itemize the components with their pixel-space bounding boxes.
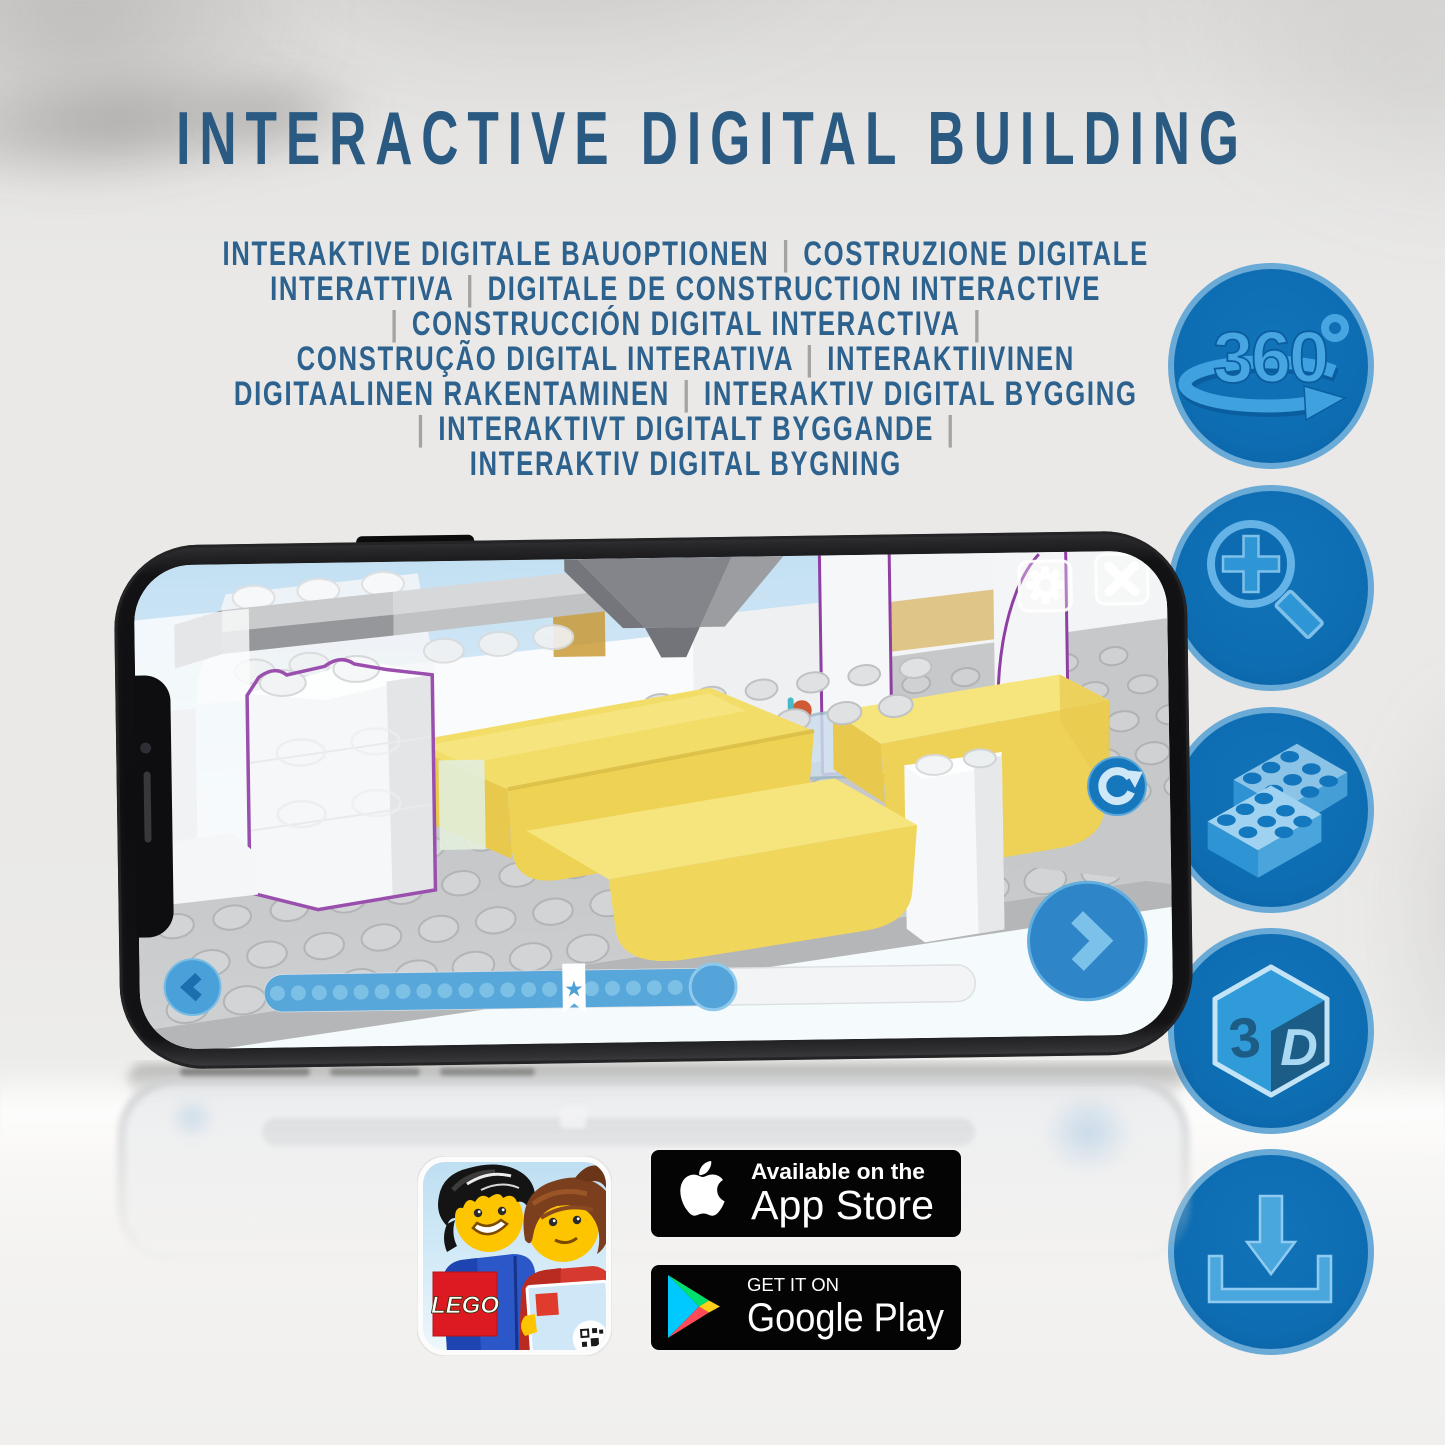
svg-text:Available on the: Available on the	[751, 1159, 925, 1184]
svg-text:Google Play: Google Play	[747, 1296, 944, 1340]
svg-text:GET IT ON: GET IT ON	[747, 1275, 839, 1295]
svg-text:★: ★	[564, 976, 584, 1001]
svg-text:App Store: App Store	[751, 1182, 934, 1228]
svg-text:LEGO: LEGO	[431, 1292, 499, 1319]
svg-text:360: 360	[1213, 318, 1327, 398]
